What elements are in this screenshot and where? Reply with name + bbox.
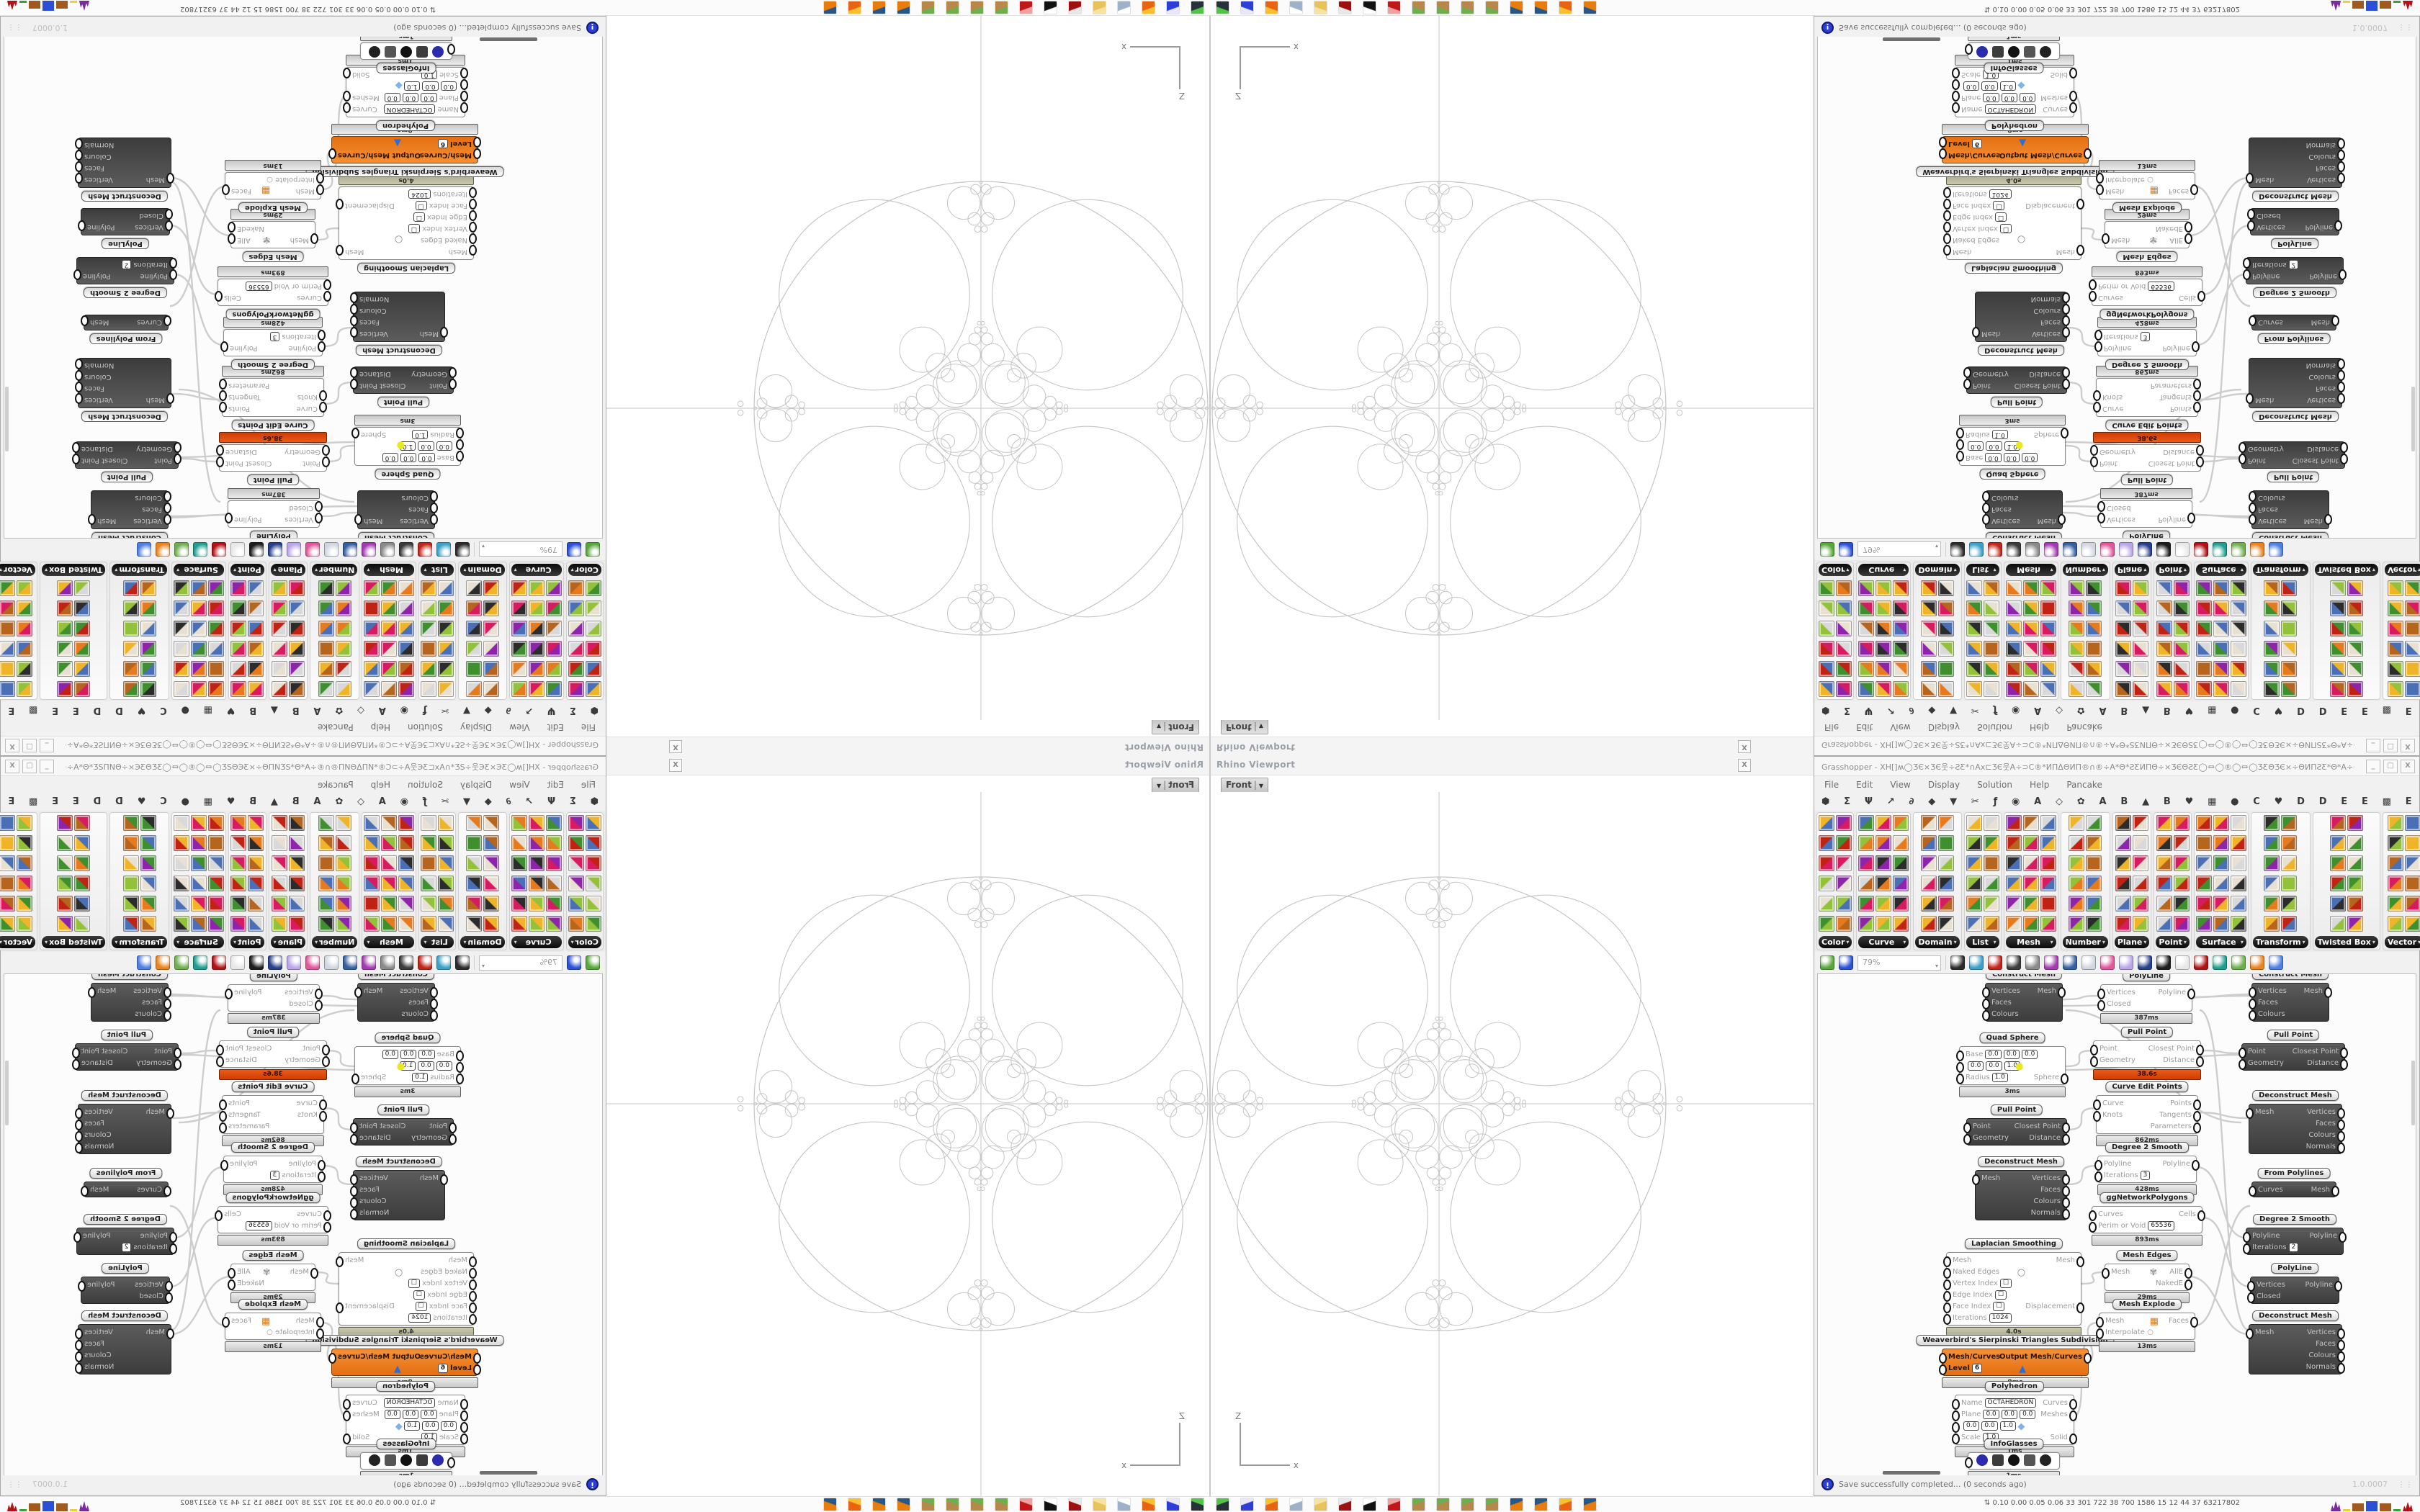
gh-node-name-pill[interactable]: Deconstruct Mesh xyxy=(2252,1090,2339,1101)
output-notch[interactable] xyxy=(222,1317,230,1328)
bulb-icon[interactable] xyxy=(287,955,301,970)
chevron-down-icon[interactable]: ▾ xyxy=(2051,936,2053,948)
gh-node-name-pill[interactable]: Quad Sphere xyxy=(1980,469,2045,480)
input-notch[interactable] xyxy=(2246,173,2254,184)
badge-icon[interactable] xyxy=(432,1454,444,1466)
component-icon[interactable] xyxy=(2196,641,2212,657)
component-icon[interactable] xyxy=(2330,896,2346,912)
category-tab[interactable]: ◆ xyxy=(485,794,492,810)
input-notch[interactable] xyxy=(1965,1457,1973,1468)
palette-category-pill[interactable]: Transform▾ xyxy=(2253,564,2308,576)
value-field[interactable]: 0.0 xyxy=(418,453,434,462)
zoom-extents-icon[interactable] xyxy=(1950,955,1965,970)
gh-node-body[interactable]: VerticesMeshFacesColours xyxy=(2251,490,2329,529)
menu-edit[interactable]: Edit xyxy=(547,723,564,733)
output-notch[interactable] xyxy=(350,304,358,315)
gh-node-name-pill[interactable]: Weaverbird's Sierpinski Triangles Subdiv… xyxy=(1916,1335,2114,1346)
component-icon[interactable] xyxy=(483,855,499,871)
palette-category-pill[interactable]: Plane▾ xyxy=(2115,564,2150,576)
close-icon[interactable]: X xyxy=(669,740,682,753)
output-notch[interactable] xyxy=(2340,1048,2348,1058)
output-notch[interactable] xyxy=(350,367,358,378)
krita-icon[interactable] xyxy=(1412,1,1425,14)
component-icon[interactable] xyxy=(483,621,499,636)
component-icon[interactable] xyxy=(2281,580,2297,596)
input-notch[interactable] xyxy=(2096,173,2104,184)
component-icon[interactable] xyxy=(381,876,397,891)
component-icon[interactable] xyxy=(140,835,156,851)
input-notch[interactable] xyxy=(447,1457,455,1468)
output-notch[interactable] xyxy=(336,245,344,256)
blender-icon[interactable] xyxy=(1510,1,1523,14)
input-notch[interactable] xyxy=(1956,451,1964,462)
input-notch[interactable] xyxy=(2238,442,2246,453)
component-icon[interactable] xyxy=(2086,876,2102,891)
category-tab[interactable]: D xyxy=(115,794,123,810)
gh-node-name-pill[interactable]: Pull Point xyxy=(1991,397,2043,408)
input-notch[interactable] xyxy=(1943,1279,1951,1290)
component-icon[interactable] xyxy=(511,855,527,871)
category-tab[interactable]: ✂ xyxy=(1971,794,1979,810)
input-notch[interactable] xyxy=(2093,1099,2101,1110)
component-icon[interactable] xyxy=(2086,815,2102,831)
component-icon[interactable] xyxy=(2086,896,2102,912)
component-icon[interactable] xyxy=(2330,661,2346,677)
output-notch[interactable] xyxy=(2337,1351,2345,1362)
gh-node-name-pill[interactable]: Pull Point xyxy=(377,1104,429,1115)
value-field[interactable]: 0.0 xyxy=(421,1410,436,1419)
component-icon[interactable] xyxy=(2213,681,2229,697)
input-notch[interactable] xyxy=(469,245,477,256)
component-icon[interactable] xyxy=(140,916,156,932)
input-notch[interactable] xyxy=(2247,1292,2255,1303)
component-icon[interactable] xyxy=(2133,580,2148,596)
component-icon[interactable] xyxy=(1893,916,1909,932)
viewport-canvas[interactable]: Zx xyxy=(606,16,1209,720)
component-icon[interactable] xyxy=(2023,896,2039,912)
output-notch[interactable] xyxy=(2069,91,2077,102)
component-icon[interactable] xyxy=(174,641,189,657)
component-icon[interactable] xyxy=(17,916,32,932)
gh-node-name-pill[interactable]: From Polylines xyxy=(2258,333,2331,344)
component-icon[interactable] xyxy=(2264,621,2280,636)
component-icon[interactable] xyxy=(586,580,601,596)
output-notch[interactable] xyxy=(2190,184,2198,195)
component-icon[interactable] xyxy=(74,815,90,831)
input-notch[interactable] xyxy=(2238,1059,2246,1070)
gh-node-name-pill[interactable]: Pull Point xyxy=(247,474,299,485)
value-field[interactable]: 1.0 xyxy=(412,430,428,439)
component-icon[interactable] xyxy=(1893,681,1909,697)
close-icon[interactable]: X xyxy=(669,759,682,772)
component-icon[interactable] xyxy=(1875,855,1891,871)
component-icon[interactable] xyxy=(1921,916,1937,932)
output-notch[interactable] xyxy=(343,1410,351,1421)
component-icon[interactable] xyxy=(2264,876,2280,891)
capsule-icon[interactable] xyxy=(399,542,413,557)
input-notch[interactable] xyxy=(316,173,324,184)
category-tab[interactable]: ◆ xyxy=(1928,794,1935,810)
component-icon[interactable] xyxy=(272,641,287,657)
output-notch[interactable] xyxy=(75,1363,83,1374)
output-notch[interactable] xyxy=(2340,1059,2348,1070)
value-field[interactable]: 65536 xyxy=(2148,282,2174,291)
component-icon[interactable] xyxy=(2213,835,2229,851)
component-icon[interactable] xyxy=(1984,896,1999,912)
component-icon[interactable] xyxy=(336,815,351,831)
input-notch[interactable] xyxy=(322,1056,330,1067)
gh-node-name-pill[interactable]: Laplacian Smoothing xyxy=(357,1238,455,1249)
chevron-down-icon[interactable]: ▾ xyxy=(176,564,179,576)
value-field[interactable]: ☐ xyxy=(413,1290,425,1300)
goggles-icon[interactable] xyxy=(400,46,412,58)
category-tab[interactable]: ● xyxy=(181,702,189,718)
component-icon[interactable] xyxy=(2196,681,2212,697)
component-icon[interactable] xyxy=(398,641,414,657)
category-tab[interactable]: Σ xyxy=(570,702,576,718)
component-icon[interactable] xyxy=(398,580,414,596)
category-tab[interactable]: ◇ xyxy=(357,702,364,718)
puzzle-icon[interactable] xyxy=(369,1454,380,1466)
output-notch[interactable] xyxy=(73,269,81,280)
component-icon[interactable] xyxy=(1893,896,1909,912)
menu-solution[interactable]: Solution xyxy=(1977,723,2012,733)
component-icon[interactable] xyxy=(191,600,207,616)
doc-flag-icon[interactable] xyxy=(2063,542,2077,557)
component-icon[interactable] xyxy=(511,815,527,831)
gh-node-body[interactable]: Base0.00.00.00.00.01.0●Radius1.0Sphere xyxy=(354,427,461,466)
palette-category-pill[interactable]: Vector▾ xyxy=(2385,936,2420,948)
gh-node-body[interactable]: NameOCTAHEDRONCurvesPlane0.00.00.0Meshes… xyxy=(346,1395,465,1445)
ornament-icon[interactable] xyxy=(1019,1,1033,14)
component-icon[interactable] xyxy=(529,876,544,891)
component-icon[interactable] xyxy=(191,580,207,596)
output-notch[interactable] xyxy=(2069,68,2077,78)
gh-node-name-pill[interactable]: Curve Edit Points xyxy=(2105,1081,2188,1092)
component-icon[interactable] xyxy=(272,896,287,912)
ball-green-icon[interactable] xyxy=(2231,542,2246,557)
output-notch[interactable] xyxy=(2062,1134,2070,1145)
output-notch[interactable] xyxy=(351,1074,359,1084)
input-notch[interactable] xyxy=(2090,1056,2098,1067)
component-icon[interactable] xyxy=(1984,580,1999,596)
value-field[interactable]: 3 xyxy=(270,1171,280,1180)
component-icon[interactable] xyxy=(208,621,224,636)
input-notch[interactable] xyxy=(2094,330,2102,341)
component-icon[interactable] xyxy=(74,876,90,891)
component-icon[interactable] xyxy=(483,661,499,677)
component-icon[interactable] xyxy=(2023,580,2039,596)
gh-node-body[interactable]: VerticesMeshFacesColours xyxy=(91,490,169,529)
component-icon[interactable] xyxy=(2264,835,2280,851)
component-icon[interactable] xyxy=(568,896,584,912)
blender-icon[interactable] xyxy=(1510,1498,1523,1511)
component-icon[interactable] xyxy=(289,580,305,596)
input-notch[interactable] xyxy=(430,491,438,502)
component-icon[interactable] xyxy=(2347,896,2363,912)
category-tab[interactable]: A xyxy=(2099,702,2107,718)
component-icon[interactable] xyxy=(2213,876,2229,891)
component-icon[interactable] xyxy=(568,641,584,657)
component-icon[interactable] xyxy=(174,661,189,677)
category-tab[interactable]: D xyxy=(94,702,102,718)
component-icon[interactable] xyxy=(1966,661,1982,677)
component-icon[interactable] xyxy=(364,916,380,932)
menu-solution[interactable]: Solution xyxy=(408,780,443,790)
input-notch[interactable] xyxy=(323,279,331,290)
category-tab[interactable]: ♥ xyxy=(2185,794,2194,810)
component-icon[interactable] xyxy=(1819,661,1834,677)
palette-category-pill[interactable]: List▾ xyxy=(421,564,454,576)
component-icon[interactable] xyxy=(17,835,32,851)
input-notch[interactable] xyxy=(163,1010,171,1021)
menu-view[interactable]: View xyxy=(509,780,529,790)
component-icon[interactable] xyxy=(289,855,305,871)
gh-node-name-pill[interactable]: Deconstruct Mesh xyxy=(356,345,442,356)
gh-node-name-pill[interactable]: Mesh Explode xyxy=(2112,202,2182,213)
component-icon[interactable] xyxy=(0,621,15,636)
ball-teal-icon[interactable] xyxy=(193,955,207,970)
component-icon[interactable] xyxy=(57,580,73,596)
value-field[interactable]: ☐ xyxy=(408,1279,420,1288)
category-tab[interactable]: ƒ xyxy=(1994,794,1998,810)
component-icon[interactable] xyxy=(1819,896,1834,912)
find-icon[interactable] xyxy=(324,542,339,557)
jump-wires-icon[interactable] xyxy=(2138,542,2152,557)
value-field[interactable]: 0.0 xyxy=(1963,81,1979,91)
component-icon[interactable] xyxy=(2330,681,2346,697)
component-icon[interactable] xyxy=(1966,580,1982,596)
component-icon[interactable] xyxy=(2388,600,2403,616)
bulb-icon[interactable] xyxy=(2119,542,2133,557)
gh-node-body[interactable]: Base0.00.00.00.00.01.0●Radius1.0Sphere xyxy=(1959,1046,2066,1085)
component-icon[interactable] xyxy=(1858,600,1874,616)
horizontal-scrollbar[interactable] xyxy=(1883,1471,1940,1475)
krita-icon[interactable] xyxy=(1461,1,1474,14)
gh-node-body[interactable]: MeshMeshNaked Edges○Vertex Index☐Edge In… xyxy=(1946,1252,2081,1326)
component-icon[interactable] xyxy=(2405,621,2420,636)
chevron-down-icon[interactable]: ▾ xyxy=(482,540,485,553)
help-box-icon[interactable] xyxy=(305,955,320,970)
input-notch[interactable] xyxy=(2246,1108,2254,1119)
find-icon[interactable] xyxy=(324,955,339,970)
gh-node-name-pill[interactable]: Pull Point xyxy=(2267,1030,2319,1040)
toggle-circle-icon[interactable]: ○ xyxy=(266,1328,275,1336)
component-icon[interactable] xyxy=(546,661,562,677)
component-icon[interactable] xyxy=(381,815,397,831)
krita-icon[interactable] xyxy=(1412,1498,1425,1511)
component-icon[interactable] xyxy=(398,661,414,677)
category-tab[interactable]: ∂ xyxy=(1909,702,1914,718)
category-tab[interactable]: ▼ xyxy=(1950,702,1957,718)
menu-file[interactable]: File xyxy=(581,780,596,790)
component-icon[interactable] xyxy=(1893,876,1909,891)
input-notch[interactable] xyxy=(456,428,464,438)
gh-node-body[interactable]: VerticesMeshFacesColours xyxy=(1985,983,2063,1022)
component-icon[interactable] xyxy=(2023,621,2039,636)
gh-node-body[interactable]: VerticesMeshFacesColours xyxy=(357,983,435,1022)
input-notch[interactable] xyxy=(1956,1050,1964,1061)
gh-node-body[interactable]: PolylinePolylineIterations3 xyxy=(2097,329,2197,356)
capsule-icon[interactable] xyxy=(399,955,413,970)
component-icon[interactable] xyxy=(1836,600,1852,616)
output-notch[interactable] xyxy=(228,222,236,233)
category-tab[interactable]: Σ xyxy=(1844,702,1850,718)
category-tab[interactable]: ♥ xyxy=(2275,702,2283,718)
category-tab[interactable]: ▼ xyxy=(463,702,470,718)
category-tab[interactable]: C xyxy=(2253,794,2260,810)
gh-node-name-pill[interactable]: InfoGlasses xyxy=(376,63,436,73)
category-tab[interactable]: ♥ xyxy=(2185,702,2194,718)
chevron-down-icon[interactable]: ▾ xyxy=(45,936,48,948)
category-tab[interactable]: A xyxy=(379,702,386,718)
output-notch[interactable] xyxy=(2193,402,2201,413)
component-icon[interactable] xyxy=(230,876,246,891)
menu-view[interactable]: View xyxy=(1890,780,1910,790)
component-icon[interactable] xyxy=(174,835,189,851)
component-icon[interactable] xyxy=(546,600,562,616)
component-icon[interactable] xyxy=(483,580,499,596)
category-tab[interactable]: ✿ xyxy=(335,702,343,718)
component-icon[interactable] xyxy=(2281,855,2297,871)
archive-64-icon[interactable] xyxy=(1166,1498,1180,1511)
component-icon[interactable] xyxy=(230,621,246,636)
output-notch[interactable] xyxy=(2337,1340,2345,1351)
component-icon[interactable] xyxy=(364,681,380,697)
value-field[interactable]: 0.0 xyxy=(1968,1061,1984,1071)
output-notch[interactable] xyxy=(2184,1268,2192,1279)
input-notch[interactable] xyxy=(473,1364,481,1375)
component-icon[interactable] xyxy=(1966,600,1982,616)
input-notch[interactable] xyxy=(456,1050,464,1061)
krita-icon[interactable] xyxy=(995,1498,1008,1511)
output-notch[interactable] xyxy=(350,379,358,390)
firefox-icon[interactable] xyxy=(848,1498,861,1511)
gh-node-body[interactable]: CurvesMesh xyxy=(84,1182,169,1197)
capsule-icon[interactable] xyxy=(2007,542,2021,557)
folder-icon[interactable] xyxy=(1093,1498,1106,1511)
component-icon[interactable] xyxy=(511,835,527,851)
ornament-icon[interactable] xyxy=(1019,1498,1033,1511)
component-icon[interactable] xyxy=(2196,815,2212,831)
component-icon[interactable] xyxy=(1966,876,1982,891)
value-field[interactable]: 0.0 xyxy=(1983,93,1999,102)
component-icon[interactable] xyxy=(466,835,482,851)
component-icon[interactable] xyxy=(1819,916,1834,932)
component-icon[interactable] xyxy=(398,896,414,912)
component-icon[interactable] xyxy=(1875,600,1891,616)
value-field[interactable]: OCTAHEDRON xyxy=(1985,104,2037,114)
component-icon[interactable] xyxy=(0,600,15,616)
category-tab[interactable]: ♥ xyxy=(227,702,236,718)
ornament-icon[interactable] xyxy=(1387,1,1401,14)
at-stamp-icon[interactable] xyxy=(2025,542,2040,557)
component-icon[interactable] xyxy=(2086,681,2102,697)
component-icon[interactable] xyxy=(2086,641,2102,657)
value-field[interactable]: ☐ xyxy=(416,201,427,210)
palette-category-pill[interactable]: Plane▾ xyxy=(271,936,306,948)
menu-file[interactable]: File xyxy=(1824,780,1839,790)
input-notch[interactable] xyxy=(1963,1122,1971,1133)
input-notch[interactable] xyxy=(2249,1186,2257,1197)
component-icon[interactable] xyxy=(272,621,287,636)
gh-node-name-pill[interactable]: Degree 2 Smooth xyxy=(2105,359,2189,370)
component-icon[interactable] xyxy=(1858,661,1874,677)
find-icon[interactable] xyxy=(2081,955,2096,970)
output-notch[interactable] xyxy=(2062,367,2070,378)
component-icon[interactable] xyxy=(140,815,156,831)
component-icon[interactable] xyxy=(1938,896,1954,912)
badge-icon[interactable] xyxy=(1976,46,1988,58)
component-icon[interactable] xyxy=(438,855,454,871)
folder-icon[interactable] xyxy=(1314,1498,1327,1511)
value-field[interactable]: OCTAHEDRON xyxy=(384,1398,436,1408)
category-tab[interactable]: E xyxy=(8,702,14,718)
component-icon[interactable] xyxy=(1984,835,1999,851)
component-icon[interactable] xyxy=(586,815,601,831)
component-icon[interactable] xyxy=(17,896,32,912)
component-icon[interactable] xyxy=(1984,621,1999,636)
category-tab[interactable]: A xyxy=(313,702,321,718)
gh-node-body[interactable]: NameOCTAHEDRONCurvesPlane0.00.00.0Meshes… xyxy=(1955,1395,2074,1445)
value-field[interactable]: 6 xyxy=(1972,139,1982,148)
component-icon[interactable] xyxy=(2040,916,2056,932)
component-icon[interactable] xyxy=(140,661,156,677)
component-icon[interactable] xyxy=(2040,681,2056,697)
output-notch[interactable] xyxy=(2339,1232,2347,1243)
output-notch[interactable] xyxy=(75,1351,83,1362)
node-canvas[interactable]: Construct MeshVerticesMeshFacesColoursQu… xyxy=(4,973,603,1476)
value-field[interactable]: 0.0 xyxy=(385,1410,400,1419)
component-icon[interactable] xyxy=(568,661,584,677)
output-notch[interactable] xyxy=(73,1232,81,1243)
category-tab[interactable]: A xyxy=(379,794,386,810)
krita-icon[interactable] xyxy=(995,1,1008,14)
close-button[interactable]: X xyxy=(5,739,19,752)
component-icon[interactable] xyxy=(2115,661,2131,677)
component-icon[interactable] xyxy=(1836,815,1852,831)
component-icon[interactable] xyxy=(2115,600,2131,616)
component-icon[interactable] xyxy=(529,815,544,831)
chevron-down-icon[interactable]: ▾ xyxy=(1846,564,1849,576)
input-notch[interactable] xyxy=(2243,269,2251,280)
component-icon[interactable] xyxy=(364,661,380,677)
gh-node-body[interactable]: MeshVerticesFacesColoursNormals xyxy=(78,138,171,188)
input-notch[interactable] xyxy=(2096,184,2104,195)
pipe-icon[interactable] xyxy=(2175,542,2190,557)
output-notch[interactable] xyxy=(78,220,86,231)
input-notch[interactable] xyxy=(1952,79,1960,90)
component-icon[interactable] xyxy=(2086,580,2102,596)
input-notch[interactable] xyxy=(460,91,468,102)
gh-node-body[interactable]: VerticesMeshFacesColours xyxy=(2251,983,2329,1022)
component-icon[interactable] xyxy=(57,621,73,636)
chevron-down-icon[interactable]: ▾ xyxy=(45,564,48,576)
component-icon[interactable] xyxy=(381,916,397,932)
component-icon[interactable] xyxy=(438,681,454,697)
gh-node-body[interactable]: PointClosest PointGeometryDistance xyxy=(2093,1040,2201,1068)
component-icon[interactable] xyxy=(1858,621,1874,636)
category-tab[interactable]: C xyxy=(160,702,167,718)
output-notch[interactable] xyxy=(351,428,359,438)
component-icon[interactable] xyxy=(1966,621,1982,636)
component-icon[interactable] xyxy=(2156,815,2172,831)
component-icon[interactable] xyxy=(2069,835,2084,851)
category-tab[interactable]: D xyxy=(2297,702,2305,718)
component-icon[interactable] xyxy=(466,815,482,831)
viewport-canvas[interactable]: Zx xyxy=(1211,16,1814,720)
component-icon[interactable] xyxy=(1938,641,1954,657)
